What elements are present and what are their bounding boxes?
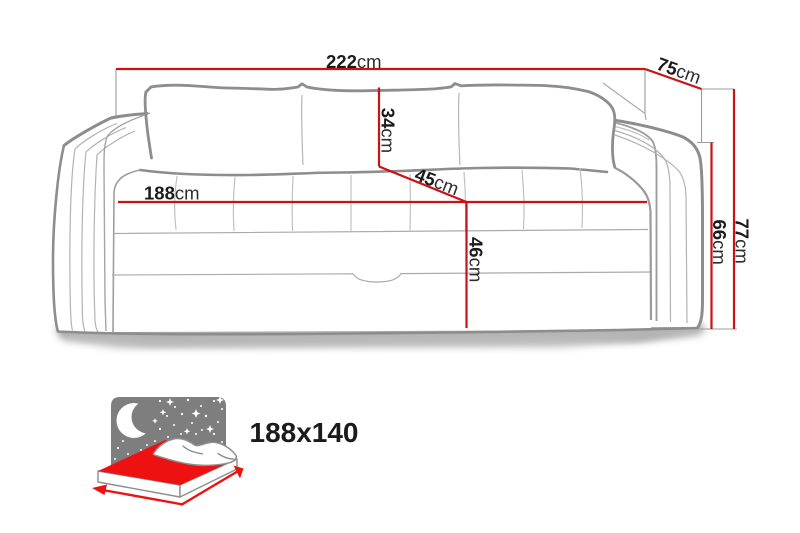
svg-text:188x140: 188x140 xyxy=(250,417,359,448)
svg-text:222cm: 222cm xyxy=(326,51,382,72)
svg-text:188cm: 188cm xyxy=(144,183,200,204)
svg-text:77cm: 77cm xyxy=(731,219,752,264)
svg-text:66cm: 66cm xyxy=(709,220,730,265)
svg-text:46cm: 46cm xyxy=(466,237,487,282)
svg-text:34cm: 34cm xyxy=(377,108,398,153)
svg-text:75cm: 75cm xyxy=(654,53,704,88)
